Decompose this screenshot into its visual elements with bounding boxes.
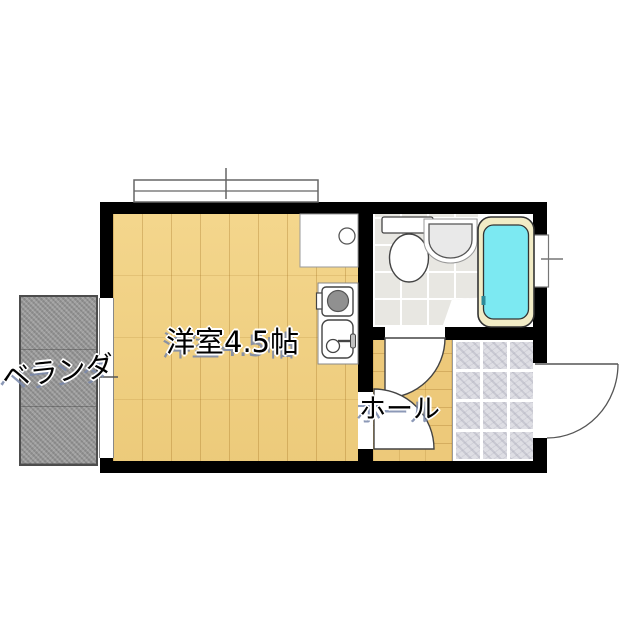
bathtub-icon — [478, 217, 534, 327]
wall-washroom-left-seg — [358, 327, 385, 340]
wall-divider-vertical-stub — [358, 449, 373, 462]
entry-door-opening — [533, 363, 547, 438]
entry-door-arc — [535, 364, 618, 438]
wall-left-upper — [100, 202, 113, 298]
window-top-icon — [134, 168, 318, 202]
wall-right-lower — [533, 438, 547, 473]
wall-right-middle — [533, 287, 547, 363]
washroom-door-opening — [385, 327, 445, 340]
wall-top — [100, 202, 547, 214]
wall-bottom — [100, 461, 547, 473]
genkan-floor — [452, 340, 534, 462]
hall-label: ホール — [359, 387, 440, 426]
wall-washroom-right-seg — [445, 327, 533, 340]
washroom-floor — [373, 214, 478, 327]
window-right-icon — [534, 235, 564, 287]
wall-divider-vertical — [358, 214, 373, 392]
floor-plan: 洋室4.5帖 ホール ベランダ — [0, 0, 640, 640]
wall-right-upper — [533, 202, 547, 235]
main-room-label: 洋室4.5帖 — [166, 319, 299, 361]
